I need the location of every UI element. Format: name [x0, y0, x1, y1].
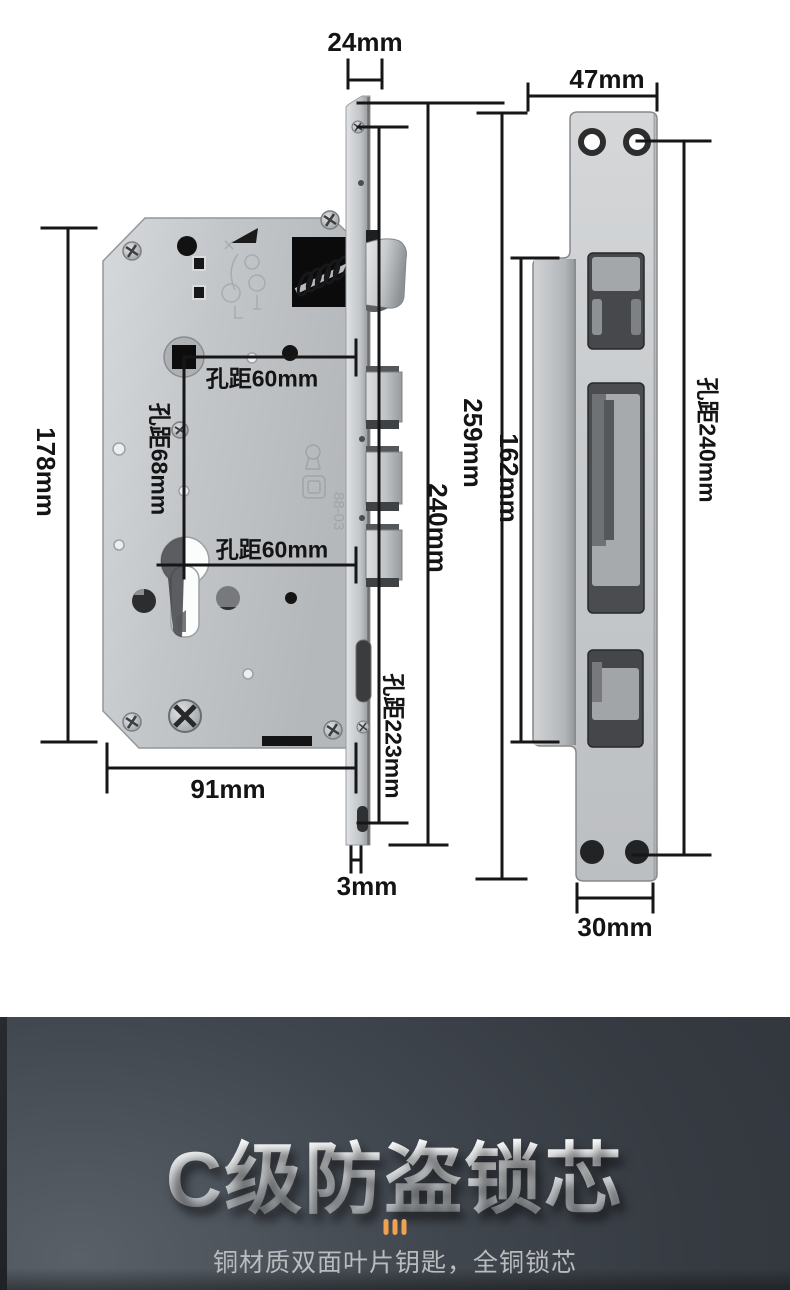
- lock-body: 88-03: [103, 211, 352, 748]
- dim-label-backset-lower: 孔距60mm: [216, 539, 328, 562]
- body-screw: [324, 721, 342, 739]
- dim-label-faceplate-screw-distance: 孔距223mm: [382, 673, 405, 798]
- deadbolt: [366, 446, 402, 511]
- strike-cutout-deadbolt: [588, 383, 644, 613]
- dim-label-strike-hole-distance: 孔距240mm: [696, 377, 719, 502]
- strike-cutout-latch: [588, 253, 644, 349]
- lock-illustration: 88-03: [0, 0, 790, 1017]
- faceplate-slot: [356, 640, 371, 702]
- product-detail-image: 88-03: [0, 0, 790, 1290]
- three-bars-divider-icon: [384, 1219, 407, 1235]
- strike-plate: [533, 112, 657, 881]
- strike-cutout-deadbolt: [588, 650, 643, 747]
- accent-bar: [393, 1219, 398, 1235]
- dim-label-overall-length: 259mm: [460, 398, 486, 488]
- dim-label-spindle-cylinder-distance: 孔距68mm: [148, 403, 171, 515]
- feature-banner: C级防盗锁芯 铜材质双面叶片钥匙，全铜锁芯: [0, 1017, 790, 1290]
- banner-title: C级防盗锁芯: [166, 1117, 624, 1229]
- dim-3mm-lines: [351, 847, 361, 872]
- body-screw-small: [172, 422, 188, 438]
- strike-screw-hole: [580, 840, 604, 864]
- latch-spring-window: [292, 237, 350, 307]
- dimension-diagram-section: 88-03: [0, 0, 790, 1017]
- spindle-release-hole: [177, 236, 197, 256]
- body-screw: [123, 242, 141, 260]
- dim-24mm-lines: [348, 60, 382, 88]
- accent-bar: [402, 1219, 407, 1235]
- strike-plate-lip: [534, 259, 575, 745]
- dim-label-strike-bottom-width: 30mm: [577, 914, 652, 940]
- accent-bar: [384, 1219, 389, 1235]
- strike-screw-hole: [581, 131, 603, 153]
- dim-label-faceplate-thickness: 3mm: [337, 873, 398, 899]
- deadbolt: [366, 524, 402, 587]
- dim-label-body-height: 178mm: [33, 427, 59, 517]
- dim-30mm-lines: [577, 884, 653, 912]
- latch-bolt: [366, 230, 407, 312]
- etched-model-text: 88-03: [330, 492, 347, 530]
- banner-left-edge: [0, 1017, 7, 1290]
- banner-subtitle: 铜材质双面叶片钥匙，全铜锁芯: [213, 1243, 577, 1279]
- cylinder-fixing-screw: [169, 700, 201, 732]
- dim-label-plate-width: 47mm: [569, 66, 644, 92]
- dim-label-body-width: 91mm: [190, 776, 265, 802]
- dim-label-backset-upper: 孔距60mm: [206, 368, 318, 391]
- deadbolt: [366, 366, 402, 429]
- faceplate-screw: [357, 721, 369, 733]
- strike-screw-hole: [625, 840, 649, 864]
- body-screw: [123, 713, 141, 731]
- dim-label-faceplate-width: 24mm: [327, 29, 402, 55]
- dim-label-lip-length: 162mm: [496, 433, 522, 523]
- dim-label-faceplate-length: 240mm: [425, 483, 451, 573]
- body-screw: [321, 211, 339, 229]
